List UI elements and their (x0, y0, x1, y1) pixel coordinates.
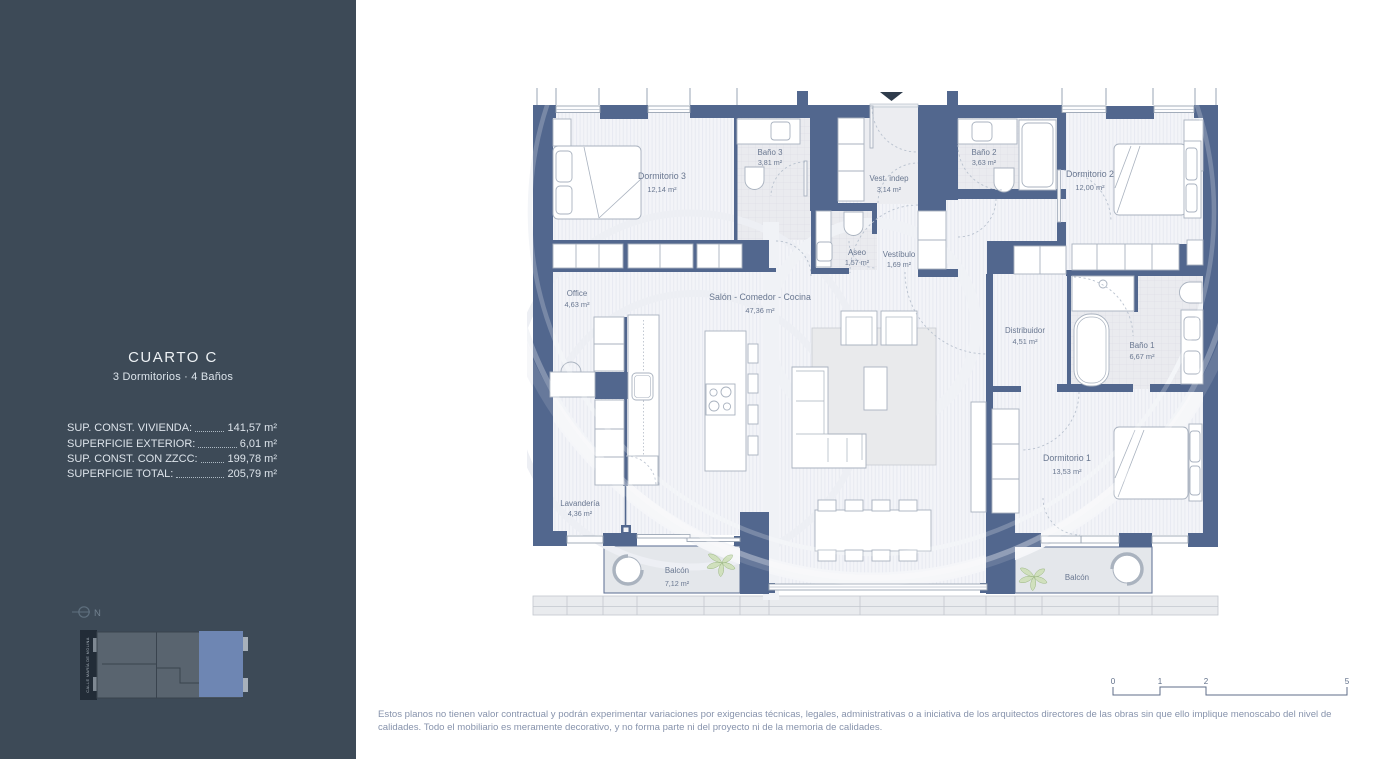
svg-text:CALLE MARÍA DE MOLINA: CALLE MARÍA DE MOLINA (85, 637, 90, 692)
svg-text:Salón - Comedor - Cocina: Salón - Comedor - Cocina (709, 292, 811, 302)
svg-text:1,57 m²: 1,57 m² (845, 258, 870, 267)
svg-text:Baño 3: Baño 3 (757, 148, 783, 157)
svg-text:Lavandería: Lavandería (560, 499, 600, 508)
svg-text:N: N (94, 608, 101, 619)
svg-text:Vestíbulo: Vestíbulo (883, 250, 916, 259)
svg-text:3,81 m²: 3,81 m² (758, 158, 783, 167)
svg-text:4,63 m²: 4,63 m² (564, 300, 590, 309)
svg-text:Balcón: Balcón (1065, 573, 1089, 582)
svg-text:Balcón: Balcón (665, 566, 689, 575)
svg-text:Vest. indep: Vest. indep (869, 174, 909, 183)
svg-text:3,14 m²: 3,14 m² (877, 185, 902, 194)
svg-text:1,69 m²: 1,69 m² (887, 260, 912, 269)
svg-text:4,51 m²: 4,51 m² (1012, 337, 1038, 346)
svg-text:3,63 m²: 3,63 m² (972, 158, 997, 167)
svg-text:Dormitorio 2: Dormitorio 2 (1066, 169, 1114, 179)
svg-text:1: 1 (1158, 677, 1163, 686)
svg-text:Office: Office (567, 289, 588, 298)
svg-text:Aseo: Aseo (848, 248, 867, 257)
svg-text:Baño 1: Baño 1 (1129, 341, 1154, 350)
svg-text:12,00 m²: 12,00 m² (1075, 183, 1105, 192)
svg-text:5: 5 (1345, 677, 1350, 686)
svg-text:Distribuidor: Distribuidor (1005, 326, 1045, 335)
svg-text:0: 0 (1111, 677, 1116, 686)
svg-text:7,12 m²: 7,12 m² (665, 579, 690, 588)
svg-text:Dormitorio 3: Dormitorio 3 (638, 171, 686, 181)
svg-text:4,36 m²: 4,36 m² (568, 509, 593, 518)
svg-text:13,53 m²: 13,53 m² (1052, 467, 1082, 476)
svg-text:2: 2 (1204, 677, 1209, 686)
svg-text:Baño 2: Baño 2 (971, 148, 996, 157)
svg-text:12,14 m²: 12,14 m² (647, 185, 677, 194)
svg-text:Dormitorio 1: Dormitorio 1 (1043, 453, 1091, 463)
svg-text:6,67 m²: 6,67 m² (1129, 352, 1155, 361)
svg-text:47,36 m²: 47,36 m² (745, 306, 775, 315)
